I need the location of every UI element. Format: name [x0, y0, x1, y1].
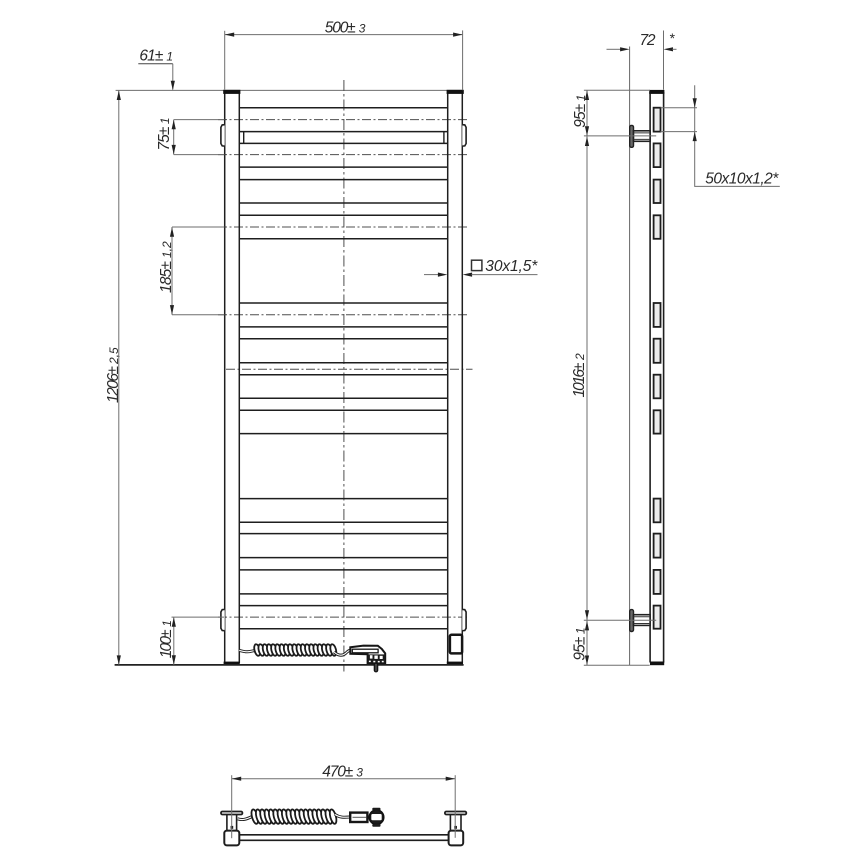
svg-text:75±: 75±: [156, 126, 173, 150]
svg-text:1: 1: [573, 627, 587, 634]
svg-text:72: 72: [640, 32, 656, 49]
svg-text:1,2: 1,2: [160, 241, 174, 258]
svg-text:2,5: 2,5: [107, 347, 121, 365]
svg-text:95±: 95±: [571, 636, 588, 660]
svg-text:1016±: 1016±: [571, 362, 588, 397]
svg-text:470±: 470±: [322, 764, 353, 781]
svg-text:61±: 61±: [139, 48, 163, 65]
svg-text:1: 1: [574, 95, 588, 102]
svg-text:100±: 100±: [158, 629, 175, 658]
svg-text:2: 2: [573, 353, 587, 361]
svg-text:1: 1: [160, 620, 174, 627]
svg-text:95±: 95±: [572, 103, 589, 127]
svg-text:500±: 500±: [325, 19, 356, 36]
svg-text:185±: 185±: [158, 261, 175, 293]
svg-text:1206±: 1206±: [105, 366, 122, 403]
svg-text:30x1,5*: 30x1,5*: [485, 258, 538, 275]
svg-text:3: 3: [359, 21, 366, 35]
svg-text:3: 3: [356, 766, 363, 780]
svg-text:1: 1: [166, 50, 173, 64]
svg-text:*: *: [669, 30, 675, 46]
svg-text:1: 1: [158, 117, 172, 124]
svg-text:50x10x1,2*: 50x10x1,2*: [705, 171, 779, 188]
